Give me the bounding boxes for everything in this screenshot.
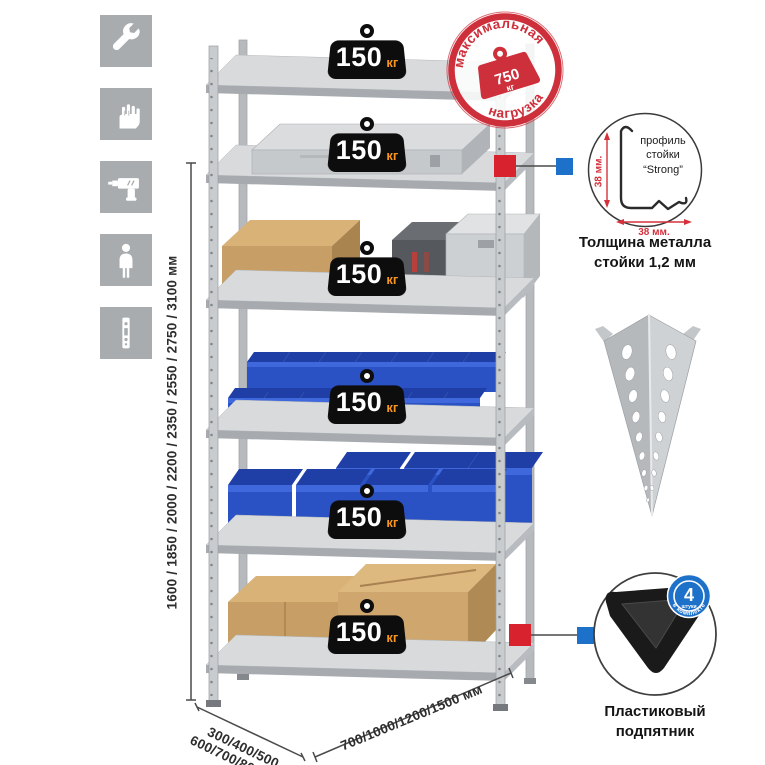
load-value: 150 bbox=[336, 135, 383, 166]
blue-marker-top bbox=[556, 158, 573, 175]
plastic-foot-circle: 4 штуки в комплекте bbox=[594, 573, 716, 695]
shelf-load-badge: 150кг bbox=[324, 241, 410, 296]
red-marker-top bbox=[494, 155, 516, 177]
shelf-load-badge: 150кг bbox=[324, 369, 410, 424]
gloves-icon bbox=[100, 88, 152, 140]
load-unit: кг bbox=[386, 630, 398, 645]
person-icon bbox=[100, 234, 152, 286]
quantity-badge-subtext: штуки bbox=[681, 604, 696, 610]
load-unit: кг bbox=[386, 272, 398, 287]
quantity-badge-value: 4 bbox=[684, 585, 694, 605]
load-value: 150 bbox=[336, 502, 383, 533]
load-value: 150 bbox=[336, 617, 383, 648]
load-value: 150 bbox=[336, 42, 383, 73]
product-infographic: максимальная нагрузка 750 кг bbox=[0, 0, 765, 765]
profile-label: профиль стойки “Strong” bbox=[633, 134, 693, 177]
blue-marker-bottom bbox=[577, 627, 594, 644]
load-unit: кг bbox=[386, 55, 398, 70]
max-load-stamp: максимальная нагрузка 750 кг bbox=[433, 0, 578, 142]
height-dimension-label: 1600 / 1850 / 2000 / 2200 / 2350 / 2550 … bbox=[165, 158, 180, 708]
shelf-load-badge: 150кг bbox=[324, 24, 410, 79]
shelf-load-badge: 150кг bbox=[324, 599, 410, 654]
load-unit: кг bbox=[386, 400, 398, 415]
red-marker-bottom bbox=[509, 624, 531, 646]
shelf-load-badge: 150кг bbox=[324, 484, 410, 539]
load-value: 150 bbox=[336, 259, 383, 290]
load-unit: кг bbox=[386, 148, 398, 163]
load-value: 150 bbox=[336, 387, 383, 418]
shelf-load-badge: 150кг bbox=[324, 117, 410, 172]
load-unit: кг bbox=[386, 515, 398, 530]
plastic-foot-caption: Пластиковый подпятник bbox=[580, 702, 730, 743]
wrench-icon bbox=[100, 15, 152, 67]
quantity-badge: 4 штуки в комплекте bbox=[668, 575, 711, 618]
profile-vertical-dim: 38 мм. bbox=[594, 142, 605, 202]
metal-thickness-caption: Толщина металла стойки 1,2 мм bbox=[568, 233, 722, 274]
rack-post-icon bbox=[100, 307, 152, 359]
angle-post-image bbox=[595, 315, 701, 516]
drill-icon bbox=[100, 161, 152, 213]
